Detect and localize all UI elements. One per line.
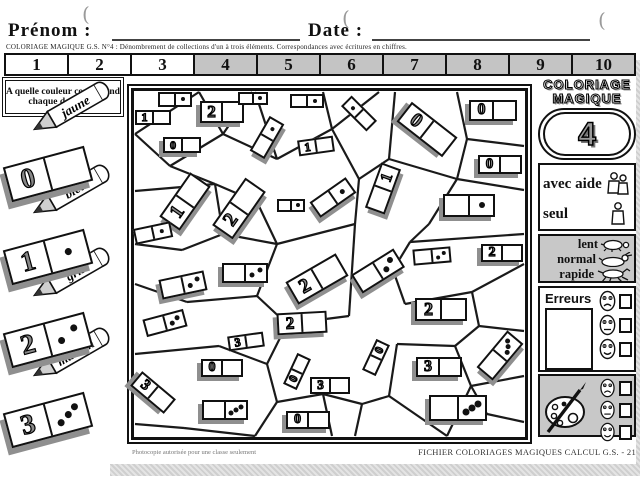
one-person-icon [605, 201, 631, 227]
domino-dots-2 [412, 246, 451, 265]
domino-dots-1 [277, 199, 305, 212]
scan-edge [636, 60, 640, 464]
domino-digit-3: 3 [416, 357, 462, 377]
date-writing-line [372, 38, 590, 41]
domino-digit-0: 0 [286, 411, 330, 429]
badge-oval: 4 [543, 112, 631, 156]
domino-digit-0: 0 [478, 155, 522, 174]
neutral-face-icon [599, 314, 616, 336]
coloring-puzzle: 1200010121222233003003 [127, 84, 532, 444]
sidebar-title-line2: MAGIQUE [538, 92, 636, 106]
happy-face-icon [599, 422, 616, 442]
domino-dots-1 [443, 194, 495, 217]
happy-face-icon [599, 338, 616, 360]
two-persons-icon [605, 171, 631, 197]
domino-dots-1 [290, 94, 324, 108]
horse-icon [596, 267, 632, 283]
errors-faces [599, 290, 632, 360]
prenom-writing-line [112, 38, 300, 41]
happy-checkbox[interactable] [619, 342, 632, 357]
rabbit-icon [598, 252, 632, 267]
number-cell-8: 8 [447, 55, 510, 74]
neutral-checkbox[interactable] [619, 318, 632, 333]
domino-digit-2: 2 [276, 311, 327, 336]
sidebar-title: COLORIAGE MAGIQUE [538, 78, 636, 105]
scan-artifact: ( [598, 8, 606, 32]
slow-label: lent [578, 237, 598, 252]
domino-digit-0: 0 [469, 100, 517, 121]
domino-dots-1 [238, 92, 268, 105]
worksheet-subtitle: COLORIAGE MAGIQUE G.S. N°4 : Dénombremen… [6, 43, 407, 51]
scan-edge [110, 464, 640, 476]
turtle-icon [600, 238, 632, 252]
worksheet-number: 4 [578, 116, 596, 153]
fast-label: rapide [559, 267, 594, 282]
domino-digit-2: 2 [415, 298, 467, 321]
sad-checkbox[interactable] [619, 294, 632, 309]
domino-dots-3 [202, 400, 248, 420]
number-cell-6: 6 [321, 55, 384, 74]
result-faces [599, 378, 632, 442]
domino-dots-1 [158, 92, 192, 107]
domino-digit-2: 2 [481, 244, 523, 262]
sad-face-icon [599, 378, 616, 398]
domino-digit-1: 1 [135, 110, 171, 125]
mode-box: avec aide seul [538, 163, 636, 231]
domino-digit-0: 0 [201, 359, 243, 377]
fichier-reference: FICHIER COLORIAGES MAGIQUES CALCUL G.S. … [418, 447, 636, 457]
puzzle-frame: 1200010121222233003003 [131, 88, 528, 440]
domino-dots-3 [429, 395, 487, 421]
speed-box: lent normal rapide [538, 234, 636, 283]
prenom-label: Prénom : [8, 20, 91, 42]
number-cell-2: 2 [69, 55, 132, 74]
photocopy-notice: Photocopie autorisée pour une classe seu… [132, 449, 256, 456]
number-strip: 12345678910 [4, 53, 636, 76]
legend-item-marron: 3 marron [2, 362, 122, 446]
number-cell-10: 10 [573, 55, 634, 74]
number-cell-9: 9 [510, 55, 573, 74]
errors-count-square [545, 308, 593, 370]
normal-label: normal [557, 252, 596, 267]
number-cell-5: 5 [258, 55, 321, 74]
alone-label: seul [543, 206, 568, 223]
errors-box: Erreurs [538, 286, 636, 372]
palette-brush-icon [542, 380, 590, 436]
neutral-result-checkbox[interactable] [619, 403, 632, 418]
number-cell-4: 4 [195, 55, 258, 74]
domino-dots-2 [222, 263, 268, 283]
number-cell-3: 3 [132, 55, 195, 74]
coloring-result-box [538, 374, 636, 437]
domino-digit-0: 0 [163, 137, 201, 153]
number-cell-1: 1 [6, 55, 69, 74]
number-cell-7: 7 [384, 55, 447, 74]
sidebar-title-line1: COLORIAGE [538, 78, 636, 92]
happy-result-checkbox[interactable] [619, 425, 632, 440]
errors-label: Erreurs [545, 291, 591, 306]
worksheet-number-badge: 4 [538, 108, 636, 160]
date-label: Date : [308, 20, 363, 42]
sad-result-checkbox[interactable] [619, 381, 632, 396]
with-help-label: avec aide [543, 176, 602, 193]
sad-face-icon [599, 290, 616, 312]
neutral-face-icon [599, 400, 616, 420]
domino-digit-3: 3 [310, 377, 350, 394]
worksheet-page: ( ( ( Prénom : Date : COLORIAGE MAGIQUE … [0, 0, 640, 480]
